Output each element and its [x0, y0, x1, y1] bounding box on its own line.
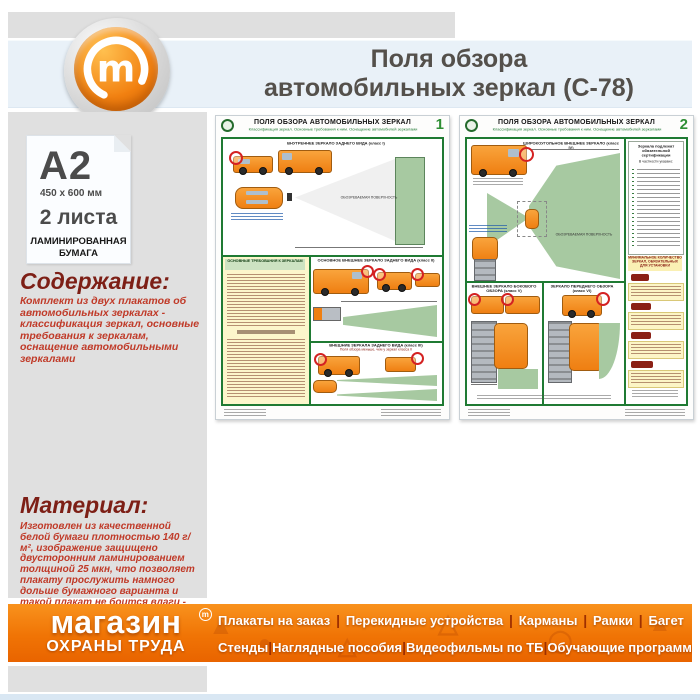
- truck-image: [278, 150, 332, 173]
- footer-menu-item[interactable]: Наглядные пособия: [272, 640, 402, 655]
- certification-bullet-lines: [632, 169, 680, 249]
- requirements-heading: ОСНОВНЫЕ ТРЕБОВАНИЯ К ЗЕРКАЛАМ: [225, 259, 305, 270]
- caption-lines: [469, 225, 507, 233]
- menu-separator: |: [639, 612, 643, 628]
- svg-text:m: m: [97, 48, 136, 91]
- poster2-title: ПОЛЯ ОБЗОРА АВТОМОБИЛЬНЫХ ЗЕРКАЛ: [478, 119, 675, 126]
- mirror-highlight-ring: [229, 151, 243, 165]
- certification-subtitle: В частности указано:: [630, 160, 682, 168]
- bottom-edge-strip: [0, 694, 700, 700]
- menu-separator: |: [583, 612, 587, 628]
- caption-lines: [231, 213, 283, 220]
- section-class6: ЗЕРКАЛО ПЕРЕДНЕГО ОБЗОРА (класс VI): [544, 281, 624, 404]
- content-text: Комплект из двух плакатов об автомобильн…: [20, 296, 203, 366]
- mirror-highlight-ring: [361, 265, 374, 278]
- view-field: [599, 323, 620, 379]
- min-mirrors-heading: МИНИМАЛЬНОЕ КОЛИЧЕСТВО ЗЕРКАЛ, ОБЯЗАТЕЛЬ…: [628, 256, 682, 271]
- poster-thumbnail-1[interactable]: ПОЛЯ ОБЗОРА АВТОМОБИЛЬНЫХ ЗЕРКАЛ Классиф…: [215, 115, 450, 420]
- mirror-highlight-ring: [519, 147, 534, 162]
- footer-menu-item[interactable]: Карманы: [519, 613, 578, 628]
- poster2-number: 2: [680, 116, 688, 133]
- certification-box: Зеркала подлежат обязательной сертификац…: [628, 141, 684, 255]
- format-card: A2 450 x 600 мм 2 листа ЛАМИНИРОВАННАЯ Б…: [26, 135, 131, 264]
- footer-menu-item[interactable]: Видеофильмы по ТБ: [406, 640, 543, 655]
- fine-print-subheading: [237, 330, 295, 334]
- section-class2-heading: ОСНОВНОЕ ВНЕШНЕЕ ЗЕРКАЛО ЗАДНЕГО ВИДА (к…: [317, 258, 435, 267]
- vehicle-type-icon: [631, 361, 653, 368]
- format-label: A2: [39, 144, 92, 189]
- caption-lines: [632, 390, 678, 398]
- dimension-line: [341, 301, 437, 302]
- poster1-content: ВНУТРЕННЕЕ ЗЕРКАЛО ЗАДНЕГО ВИДА (класс I…: [221, 137, 444, 406]
- caption-lines: [477, 395, 611, 400]
- view-field: [337, 375, 437, 386]
- page-title-line1: Поля обзора: [210, 45, 688, 74]
- material-heading: Материал:: [20, 492, 148, 519]
- mirror-symbol: [287, 193, 292, 201]
- store-logo[interactable]: магазинm ОХРАНЫ ТРУДА: [18, 606, 214, 656]
- truck-chassis-top-view: [474, 259, 496, 281]
- truck-cab-top-view: [494, 323, 528, 369]
- imprint-lines: [381, 409, 441, 416]
- vehicle-type-icon: [631, 274, 649, 281]
- section-class5: ВНЕШНЕЕ ЗЕРКАЛО БОКОВОГО ОБЗОРА (класс V…: [467, 281, 544, 404]
- registered-mark-icon: m: [199, 608, 212, 621]
- m-ring-icon: m: [74, 27, 158, 111]
- truck-image: [471, 145, 527, 175]
- menu-separator: |: [509, 612, 513, 628]
- fine-print-lines: [227, 339, 305, 397]
- poster2-right-column: Зеркала подлежат обязательной сертификац…: [624, 139, 686, 404]
- note-box: [628, 312, 684, 330]
- car-top-view: [235, 187, 283, 209]
- truck-cab-top-view: [569, 323, 603, 371]
- caption-lines: [473, 178, 523, 186]
- view-field: [343, 305, 437, 337]
- footer-menu-item[interactable]: Обучающие программы: [547, 640, 692, 655]
- mirror-highlight-ring: [468, 293, 481, 306]
- note-box: [628, 341, 684, 359]
- store-logo-line1: магазинm: [18, 606, 214, 638]
- product-page: Поля обзора автомобильных зеркал (С-78) …: [0, 0, 700, 700]
- section-class3: ВНЕШНИЕ ЗЕРКАЛА ЗАДНЕГО ВИДА (класс III)…: [311, 343, 442, 404]
- view-field: [498, 369, 538, 389]
- footer-bar: ▲ ● △ ◯ ▲ △ магазинm ОХРАНЫ ТРУДА Плакат…: [8, 604, 692, 662]
- poster2-subtitle: Классификация зеркал. Основные требовани…: [472, 127, 681, 135]
- poster1-subtitle: Классификация зеркал. Основные требовани…: [228, 127, 437, 135]
- dimension-line: [471, 384, 497, 385]
- section-class1: ВНУТРЕННЕЕ ЗЕРКАЛО ЗАДНЕГО ВИДА (класс I…: [223, 139, 442, 257]
- note-box: [628, 370, 684, 388]
- bottom-gray-block: [8, 666, 207, 692]
- poster2-content: ШИРОКОУГОЛЬНОЕ ВНЕШНЕЕ ЗЕРКАЛО (класс IV…: [465, 137, 688, 406]
- mirror-highlight-ring: [411, 352, 424, 365]
- mirror-highlight-ring: [314, 353, 327, 366]
- imprint-lines: [625, 409, 685, 416]
- footer-menu-item[interactable]: Рамки: [593, 613, 633, 628]
- poster1-title: ПОЛЯ ОБЗОРА АВТОМОБИЛЬНЫХ ЗЕРКАЛ: [234, 119, 431, 126]
- page-title-line2: автомобильных зеркал (С-78): [210, 74, 688, 103]
- mirror-highlight-ring: [373, 268, 386, 281]
- mirror-highlight-ring: [596, 292, 610, 306]
- format-dimensions: 450 x 600 мм: [40, 188, 102, 199]
- poster2-main-area: ШИРОКОУГОЛЬНОЕ ВНЕШНЕЕ ЗЕРКАЛО (класс IV…: [467, 139, 624, 404]
- footer-menu-row2: Стенды | Наглядные пособия | Видеофильмы…: [218, 637, 684, 657]
- mirror-highlight-ring: [501, 293, 514, 306]
- surface-label: ОБОЗРЕВАЕМАЯ ПОВЕРХНОСТЬ: [331, 196, 407, 204]
- footer-menu-item[interactable]: Плакаты на заказ: [218, 613, 330, 628]
- vehicle-type-icon: [631, 332, 651, 339]
- poster-thumbnail-2[interactable]: ПОЛЯ ОБЗОРА АВТОМОБИЛЬНЫХ ЗЕРКАЛ Классиф…: [459, 115, 694, 420]
- requirements-box: ОСНОВНЫЕ ТРЕБОВАНИЯ К ЗЕРКАЛАМ: [223, 257, 311, 404]
- dimension-line: [529, 149, 619, 150]
- footer-menu-item[interactable]: Перекидные устройства: [346, 613, 503, 628]
- page-title: Поля обзора автомобильных зеркал (С-78): [210, 45, 688, 103]
- paper-type: ЛАМИНИРОВАННАЯ БУМАГА: [27, 236, 130, 260]
- imprint-lines: [468, 409, 510, 416]
- sheets-count: 2 листа: [27, 206, 130, 230]
- section-class2: ОСНОВНОЕ ВНЕШНЕЕ ЗЕРКАЛО ЗАДНЕГО ВИДА (к…: [311, 257, 442, 343]
- car-top-view: [313, 380, 337, 393]
- note-box: [628, 283, 684, 301]
- brand-logo-circle: m: [74, 27, 158, 111]
- surface-label: ОБОЗРЕВАЕМАЯ ПОВЕРХНОСТЬ: [549, 233, 619, 241]
- section-class1-heading: ВНУТРЕННЕЕ ЗЕРКАЛО ЗАДНЕГО ВИДА (класс I…: [271, 141, 401, 150]
- footer-menu-item[interactable]: Стенды: [218, 640, 268, 655]
- footer-menu-item[interactable]: Багет: [648, 613, 683, 628]
- fine-print-lines: [227, 274, 305, 326]
- imprint-lines: [224, 409, 266, 416]
- product-info-panel: A2 450 x 600 мм 2 листа ЛАМИНИРОВАННАЯ Б…: [8, 112, 207, 598]
- footer-menu-row1: Плакаты на заказ | Перекидные устройства…: [218, 610, 684, 630]
- menu-separator: |: [336, 612, 340, 628]
- truck-top-view: [313, 307, 341, 321]
- brand-logo[interactable]: m: [64, 18, 170, 124]
- truck-cab-top-view: [472, 237, 498, 261]
- content-heading: Содержание:: [20, 268, 170, 295]
- truck-cab-top-view: [525, 209, 539, 229]
- dimension-line: [295, 247, 423, 248]
- store-logo-line2: ОХРАНЫ ТРУДА: [18, 638, 214, 656]
- poster1-number: 1: [436, 116, 444, 133]
- view-field: [337, 389, 437, 401]
- mirror-highlight-ring: [411, 268, 424, 281]
- vehicle-type-icon: [631, 303, 651, 310]
